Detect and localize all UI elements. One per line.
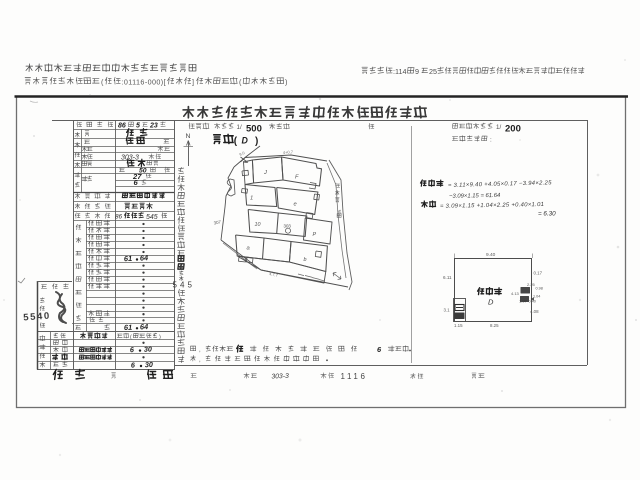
svg-text:a: a	[247, 246, 251, 252]
svg-text:4: 4	[180, 281, 185, 290]
svg-text:1.04: 1.04	[533, 295, 540, 299]
svg-text:61: 61	[124, 254, 133, 263]
svg-text:9.0: 9.0	[238, 150, 246, 157]
svg-text:J: J	[263, 170, 267, 176]
svg-text:200: 200	[505, 124, 521, 135]
svg-text:1/: 1/	[496, 124, 501, 131]
svg-text:25: 25	[429, 67, 437, 76]
svg-text:4.7.7: 4.7.7	[269, 271, 279, 278]
svg-text:0.40: 0.40	[529, 300, 536, 304]
svg-text:545: 545	[146, 214, 158, 221]
svg-text:86: 86	[115, 214, 123, 221]
svg-text:5540: 5540	[23, 311, 51, 324]
svg-text:50: 50	[337, 209, 343, 215]
svg-text::114: :114	[393, 67, 406, 76]
svg-text:,: ,	[199, 348, 201, 354]
svg-text:D: D	[242, 135, 249, 145]
svg-text:5: 5	[173, 281, 178, 290]
svg-text:): )	[285, 78, 287, 87]
svg-text:86: 86	[118, 122, 126, 129]
svg-text:1/: 1/	[237, 124, 242, 131]
svg-text:10: 10	[255, 222, 261, 228]
svg-text:3.1: 3.1	[444, 308, 451, 313]
svg-text:9.40: 9.40	[486, 252, 496, 258]
svg-text:e: e	[294, 202, 298, 208]
svg-text:): )	[159, 334, 161, 340]
svg-text:D: D	[488, 298, 494, 307]
svg-text:5: 5	[136, 122, 140, 129]
svg-text:30: 30	[144, 344, 152, 353]
svg-text:,: ,	[199, 357, 201, 363]
svg-text:9: 9	[415, 67, 419, 76]
svg-text::: :	[490, 137, 492, 144]
svg-text:= 6.30: = 6.30	[538, 211, 556, 218]
svg-text:64: 64	[140, 253, 149, 262]
svg-text:2.25: 2.25	[527, 282, 536, 287]
svg-text:8.25: 8.25	[490, 323, 499, 328]
svg-text:N: N	[186, 133, 191, 140]
svg-text:4+0.7: 4+0.7	[283, 149, 294, 155]
svg-text:64: 64	[140, 322, 149, 331]
svg-text:4.08: 4.08	[530, 309, 539, 314]
svg-text:61: 61	[124, 323, 133, 332]
svg-text:30: 30	[145, 360, 153, 369]
svg-text:= 3.11×9.40 +4.05×0.17 −3.94×2: = 3.11×9.40 +4.05×0.17 −3.94×2.25	[448, 180, 552, 189]
svg-text:1.15: 1.15	[454, 323, 463, 328]
svg-text:= 3.09×1.15 +1.04×2.25 +0.40×1: = 3.09×1.15 +1.04×2.25 +0.40×1.01	[440, 202, 544, 210]
svg-text:5: 5	[188, 281, 193, 290]
svg-text:307: 307	[213, 219, 222, 225]
svg-text:): )	[255, 136, 258, 147]
svg-text:500: 500	[246, 124, 262, 135]
svg-text:]: ]	[192, 78, 194, 87]
svg-text:(: (	[130, 334, 132, 340]
svg-text:(: (	[239, 78, 242, 87]
svg-text:1116: 1116	[341, 372, 368, 381]
svg-text:6: 6	[377, 345, 382, 354]
svg-text:(: (	[234, 136, 238, 147]
svg-text:303-3: 303-3	[271, 373, 289, 381]
svg-text:1: 1	[250, 196, 253, 202]
svg-text:b: b	[304, 257, 307, 263]
svg-text:0.98: 0.98	[536, 287, 543, 291]
svg-text:−3.09×1.15 = 61.64: −3.09×1.15 = 61.64	[449, 193, 501, 200]
svg-text:303: 303	[284, 224, 292, 229]
svg-text:23: 23	[149, 122, 158, 129]
svg-text:F: F	[295, 175, 299, 181]
svg-text:4.13: 4.13	[511, 291, 520, 296]
svg-text:6.11: 6.11	[443, 275, 452, 280]
svg-text:P: P	[313, 232, 317, 238]
svg-text::01116-000)[: :01116-000)[	[122, 78, 167, 87]
svg-text:0.17: 0.17	[534, 271, 543, 276]
svg-text:(: (	[101, 78, 104, 87]
